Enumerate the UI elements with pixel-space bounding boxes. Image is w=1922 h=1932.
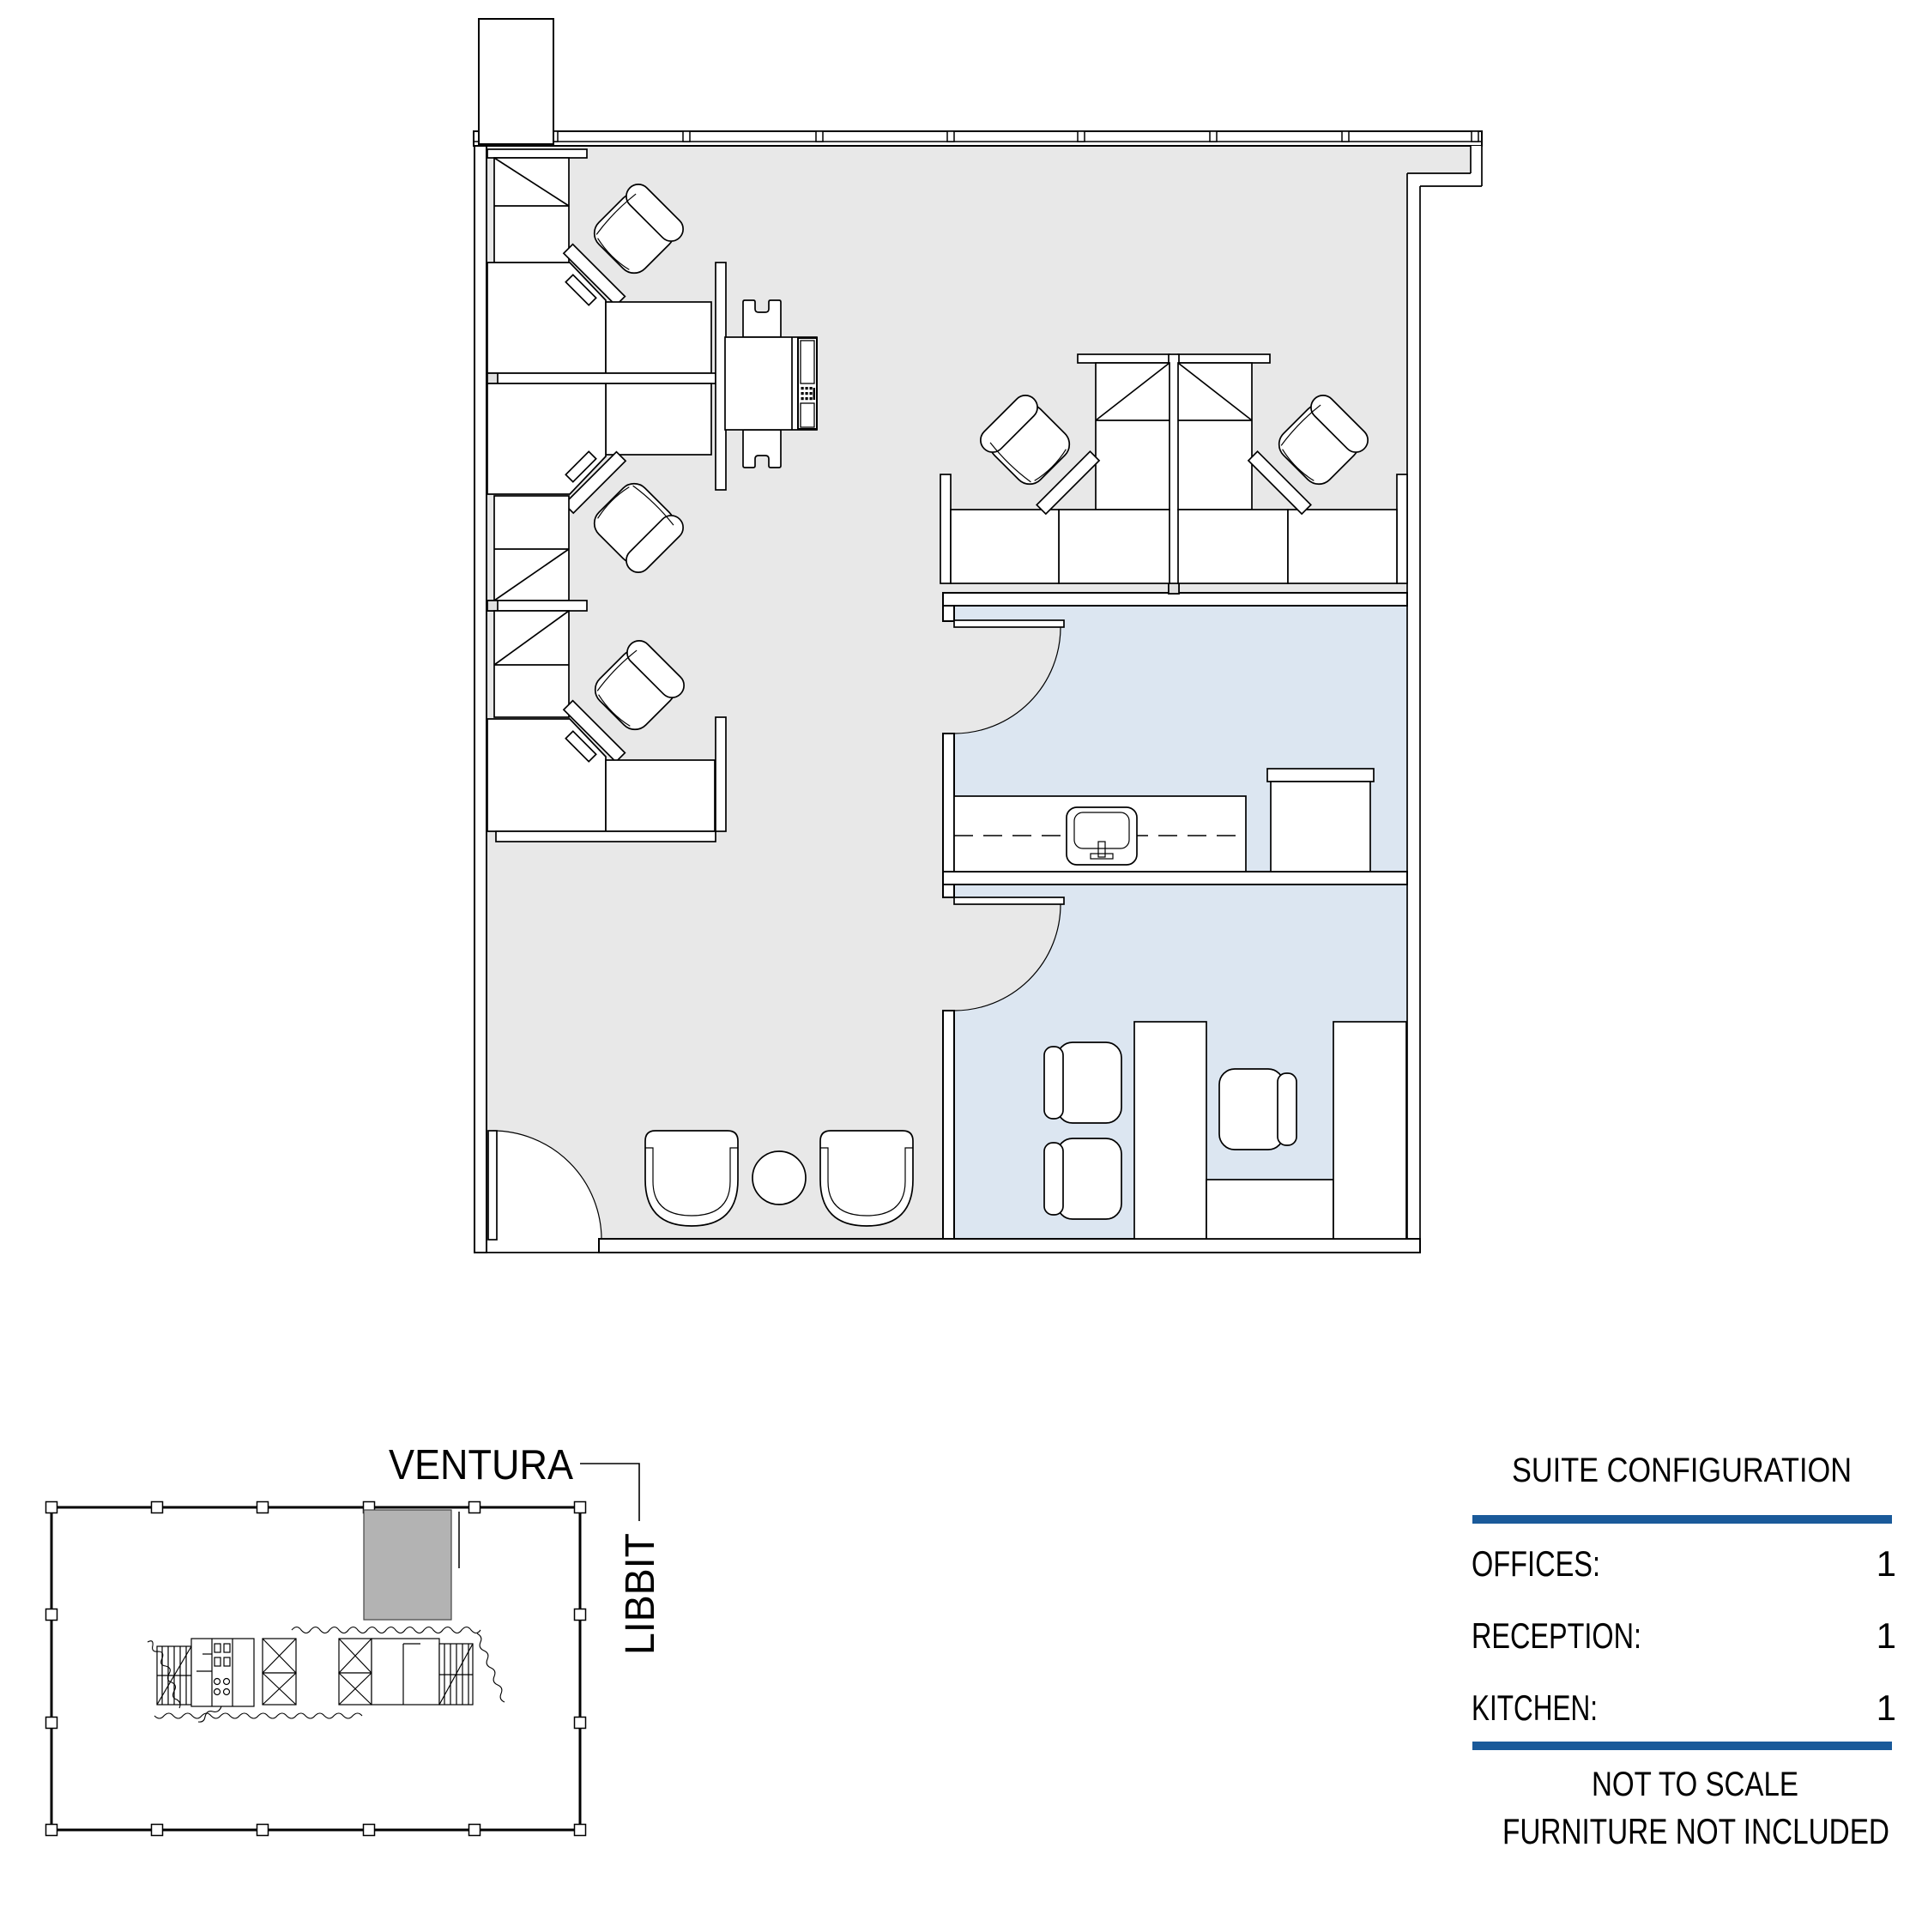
svg-text:LIBBIT: LIBBIT [618,1533,663,1655]
svg-text:RECEPTION:: RECEPTION: [1472,1615,1641,1656]
svg-text:NOT TO SCALE: NOT TO SCALE [1592,1766,1798,1803]
svg-text:1: 1 [1877,1687,1896,1728]
svg-text:1: 1 [1877,1615,1896,1656]
svg-text:SUITE CONFIGURATION: SUITE CONFIGURATION [1512,1452,1852,1489]
svg-text:KITCHEN:: KITCHEN: [1472,1687,1598,1728]
svg-text:FURNITURE NOT INCLUDED: FURNITURE NOT INCLUDED [1502,1811,1889,1851]
svg-text:VENTURA: VENTURA [389,1442,573,1488]
svg-text:OFFICES:: OFFICES: [1472,1543,1600,1584]
svg-text:1: 1 [1877,1543,1896,1584]
